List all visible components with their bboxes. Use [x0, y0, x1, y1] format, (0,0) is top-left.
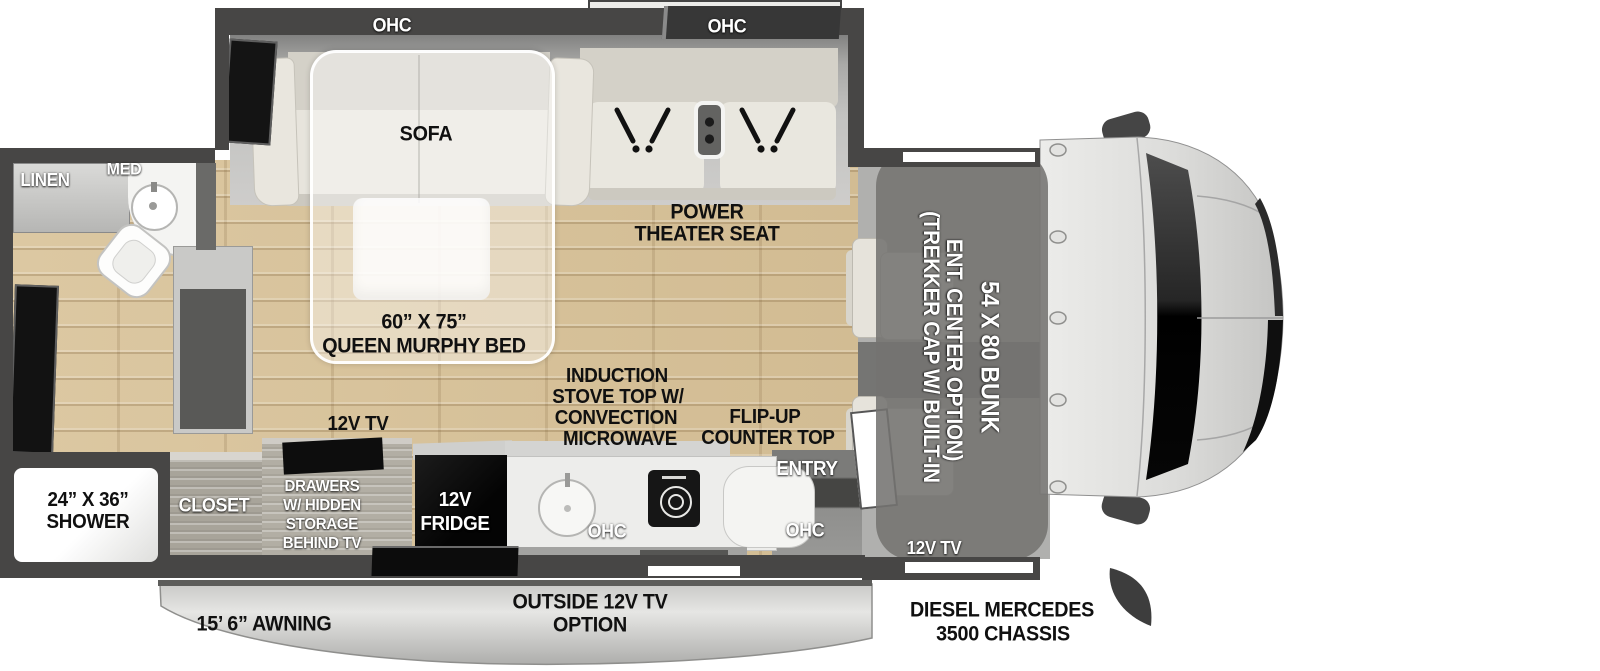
- cooktop-burner-inner-icon: [668, 494, 684, 510]
- slide-tv-panel: [222, 38, 277, 145]
- label-murphy-1: 60” X 75”: [381, 312, 466, 333]
- cab-top-bar-window: [903, 152, 1035, 162]
- wardrobe-front-panel: [180, 289, 246, 429]
- label-drawers-3: STORAGE: [286, 517, 358, 533]
- label-murphy-2: QUEEN MURPHY BED: [322, 336, 526, 357]
- label-drawers-2: W/ HIDDEN: [283, 498, 361, 514]
- label-ohc-kitchen-right: OHC: [786, 522, 825, 541]
- theater-front-edge: [588, 188, 836, 200]
- label-bunk-size: 54 X 80 BUNK: [977, 281, 1002, 433]
- kitchen-tv-screen: [282, 437, 384, 474]
- slide-right-wall: [848, 8, 864, 167]
- label-theater-2: THEATER SEAT: [634, 224, 779, 245]
- label-induction-2: STOVE TOP W/: [552, 387, 683, 407]
- cab-front-graphic: [1020, 80, 1310, 640]
- theater-ohc-cabinet: [662, 6, 841, 39]
- cooktop-control-icon: [662, 476, 686, 479]
- label-induction-1: INDUCTION: [566, 366, 668, 386]
- bathroom-partition-wall: [196, 163, 216, 250]
- label-ohc-theater: OHC: [708, 18, 747, 37]
- mirror-arm-lower-icon: [1110, 568, 1152, 626]
- label-fridge-1: 12V: [439, 490, 472, 510]
- bottom-wall-window: [648, 566, 740, 576]
- cupholder-marks-icon: [585, 95, 845, 165]
- theater-console: [696, 103, 723, 157]
- label-flipup-2: COUNTER TOP: [701, 428, 834, 448]
- label-induction-4: MICROWAVE: [563, 429, 677, 449]
- kitchen-sink-drain-icon: [564, 505, 571, 512]
- label-awning: 15’ 6” AWNING: [197, 614, 332, 635]
- label-bunk-tv: 12V TV: [907, 539, 962, 557]
- faucet-icon: [151, 182, 157, 192]
- label-shower-1: 24” X 36”: [47, 490, 128, 510]
- label-drawers-4: BEHIND TV: [283, 536, 362, 552]
- label-drawers-1: DRAWERS: [285, 479, 360, 495]
- label-outside-tv-2: OPTION: [553, 615, 627, 636]
- label-chassis-2: 3500 CHASSIS: [936, 624, 1070, 645]
- label-chassis-1: DIESEL MERCEDES: [910, 600, 1094, 621]
- label-bunk-cap-note-2: ENT. CENTER OPTION): [943, 239, 965, 461]
- kitchen-faucet-icon: [565, 473, 570, 487]
- wardrobe-cabinet: [173, 246, 253, 434]
- label-shower-2: SHOWER: [47, 512, 130, 532]
- label-ohc-sofa: OHC: [373, 17, 412, 36]
- label-fridge-2: FRIDGE: [420, 514, 489, 534]
- label-flipup-1: FLIP-UP: [729, 407, 800, 427]
- label-closet: CLOSET: [179, 497, 250, 516]
- slide-left-wall: [215, 8, 229, 150]
- sink-drain-icon: [149, 202, 157, 210]
- cab-bottom-bar-window: [905, 562, 1033, 573]
- bathroom-sink: [131, 184, 178, 231]
- rv-floorplan: OHC OHC SOFA POWER THEATER SEAT 60” X 75…: [0, 0, 1600, 671]
- label-linen: LINEN: [20, 171, 69, 189]
- label-ohc-kitchen-left: OHC: [588, 523, 627, 542]
- label-induction-3: CONVECTION: [555, 408, 678, 428]
- label-kitchen-tv: 12V TV: [327, 414, 388, 434]
- label-bunk-cap-note-1: (TREKKER CAP W/ BUILT-IN: [920, 211, 942, 483]
- induction-cooktop: [648, 470, 700, 527]
- label-entry: ENTRY: [776, 459, 838, 479]
- label-theater-1: POWER: [670, 202, 743, 223]
- label-outside-tv-1: OUTSIDE 12V TV: [512, 592, 667, 613]
- bathroom-tv-panel: [9, 284, 59, 454]
- label-sofa: SOFA: [400, 124, 453, 145]
- toilet-bowl: [108, 235, 161, 289]
- label-med: MED: [107, 161, 142, 178]
- outside-tv: [371, 546, 518, 576]
